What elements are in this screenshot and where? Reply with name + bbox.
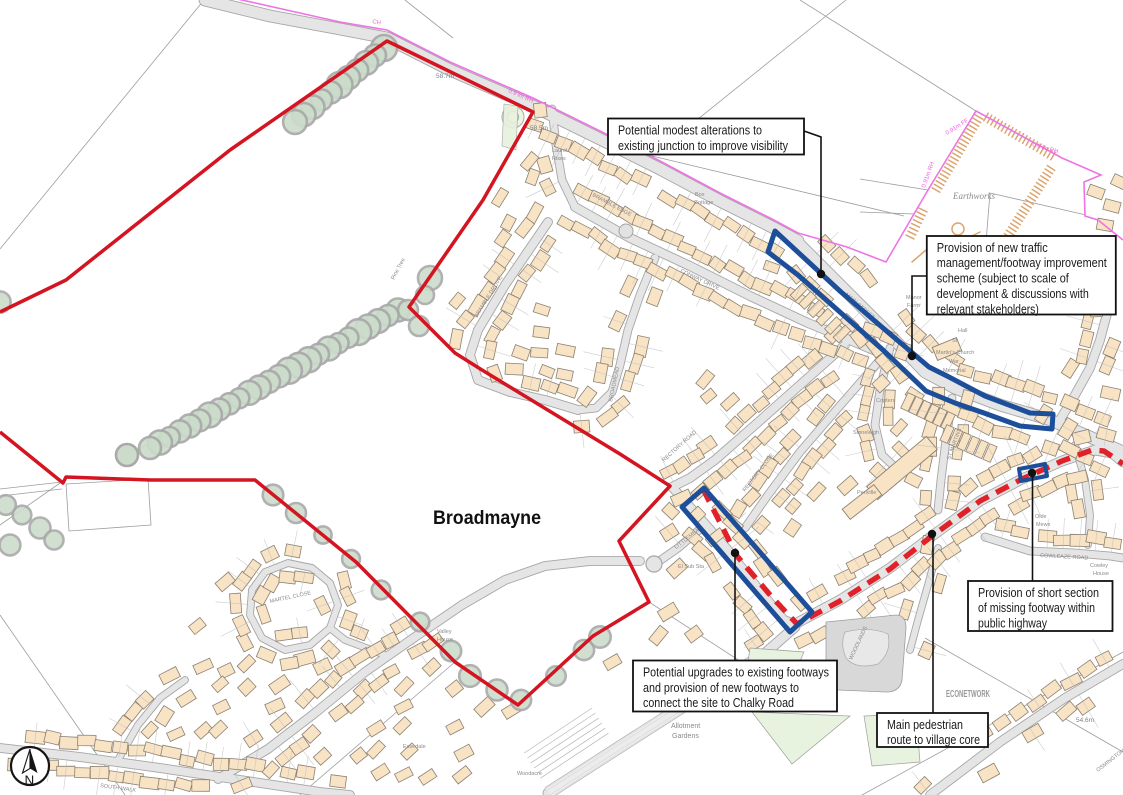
svg-text:management/footway improvement: management/footway improvement [937,255,1107,270]
svg-text:Hall: Hall [958,328,967,334]
svg-text:Potential upgrades to existing: Potential upgrades to existing footways [643,664,829,679]
svg-text:ECONETWORK: ECONETWORK [946,688,990,700]
svg-text:existing junction to improve v: existing junction to improve visibility [618,138,788,153]
svg-text:Copters: Copters [876,398,896,404]
svg-text:connect the site to Chalky Roa: connect the site to Chalky Road [643,695,794,710]
svg-text:Box: Box [695,192,705,198]
svg-text:Olde: Olde [1035,514,1047,520]
svg-text:Mews: Mews [1036,522,1051,528]
svg-text:Allotment: Allotment [671,723,700,730]
svg-text:Penville: Penville [857,490,876,496]
svg-text:Rises: Rises [552,156,566,162]
svg-text:Main pedestrian: Main pedestrian [887,717,963,732]
svg-text:route to village core: route to village core [887,732,980,747]
svg-text:N: N [25,773,35,788]
svg-text:scheme (subject to scale of: scheme (subject to scale of [937,271,1069,286]
svg-text:Provision of short section: Provision of short section [978,585,1099,600]
svg-text:House: House [1093,571,1109,577]
svg-text:Provision of new traffic: Provision of new traffic [937,240,1048,255]
svg-text:Martin's Church: Martin's Church [936,350,974,356]
svg-text:Farm: Farm [907,303,920,309]
svg-text:58.5m: 58.5m [530,125,548,132]
svg-text:Cowley: Cowley [1090,563,1108,569]
svg-text:War: War [949,359,959,365]
svg-text:Woodacre: Woodacre [517,771,542,777]
svg-text:Stoneleigh: Stoneleigh [853,430,879,436]
svg-text:of missing footway within: of missing footway within [978,600,1095,615]
svg-text:Laurel: Laurel [552,148,567,154]
svg-text:Cottage: Cottage [694,200,713,206]
svg-text:El Sub Sta: El Sub Sta [678,564,705,570]
svg-text:Earthworks: Earthworks [952,191,996,201]
svg-text:relevant stakeholders): relevant stakeholders) [937,302,1039,317]
svg-text:Potential modest alterations t: Potential modest alterations to [618,122,762,137]
svg-text:Valley: Valley [437,629,452,635]
svg-text:public highway: public highway [978,616,1047,631]
svg-text:and provision of new footways: and provision of new footways to [643,680,799,695]
svg-text:Broadmayne: Broadmayne [433,508,541,529]
svg-text:54.6m: 54.6m [1076,717,1094,724]
svg-text:House: House [437,637,453,643]
svg-text:Manor: Manor [906,295,922,301]
svg-text:development & discussions with: development & discussions with [937,286,1089,301]
svg-text:Gardens: Gardens [672,733,699,740]
svg-text:St: St [952,338,958,344]
svg-text:Essedale: Essedale [403,744,426,750]
